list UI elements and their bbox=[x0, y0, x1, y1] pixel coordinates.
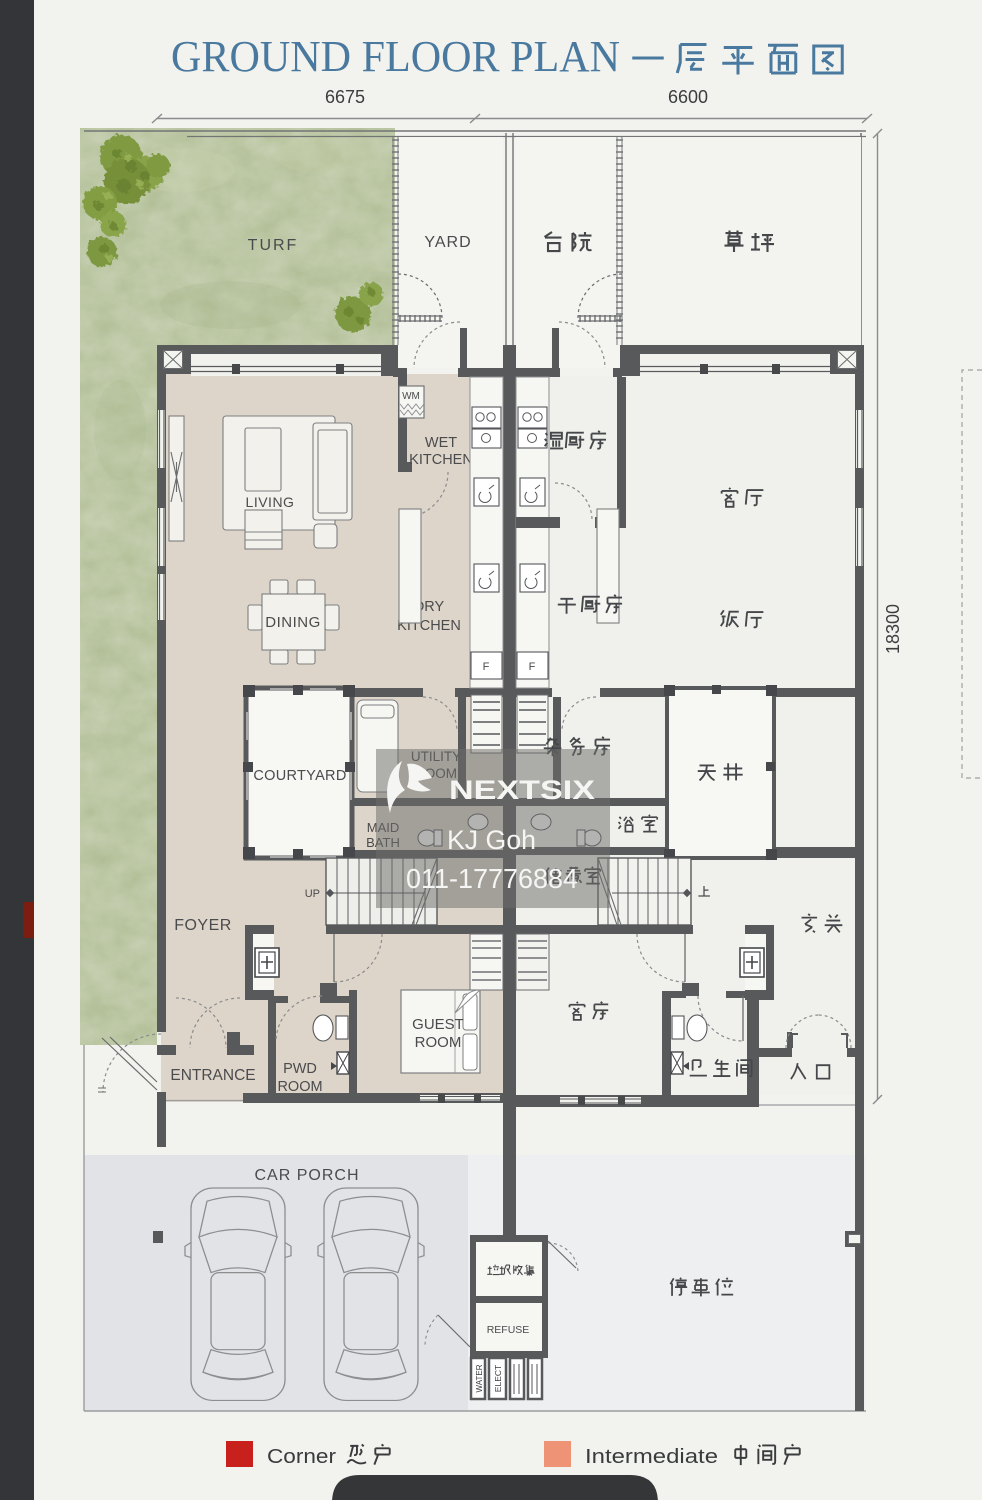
svg-text:DINING: DINING bbox=[265, 614, 321, 631]
svg-text:Corner: Corner bbox=[267, 1446, 336, 1468]
svg-text:ELECT: ELECT bbox=[493, 1365, 503, 1392]
svg-text:GROUND FLOOR PLAN: GROUND FLOOR PLAN bbox=[171, 32, 620, 81]
svg-text:TURF: TURF bbox=[248, 237, 299, 254]
svg-text:WM: WM bbox=[402, 391, 420, 402]
svg-text:6600: 6600 bbox=[668, 87, 708, 107]
svg-text:CAR PORCH: CAR PORCH bbox=[254, 1167, 359, 1184]
svg-text:Intermediate: Intermediate bbox=[585, 1446, 718, 1468]
svg-text:FOYER: FOYER bbox=[174, 917, 232, 934]
svg-text:NEXTSIX: NEXTSIX bbox=[449, 775, 595, 805]
svg-text:LIVING: LIVING bbox=[246, 494, 295, 510]
svg-text:KJ Goh: KJ Goh bbox=[447, 825, 536, 855]
svg-text:18300: 18300 bbox=[883, 604, 903, 654]
svg-text:ROOM: ROOM bbox=[415, 1034, 462, 1051]
svg-text:ENTRANCE: ENTRANCE bbox=[170, 1067, 255, 1084]
svg-text:PWD: PWD bbox=[283, 1061, 317, 1077]
svg-text:WATER: WATER bbox=[475, 1364, 484, 1392]
svg-text:F: F bbox=[529, 661, 536, 673]
svg-text:GUEST: GUEST bbox=[412, 1016, 464, 1033]
svg-text:UP: UP bbox=[305, 888, 320, 900]
svg-text:6675: 6675 bbox=[325, 87, 365, 107]
svg-text:KITCHEN: KITCHEN bbox=[409, 452, 473, 468]
svg-text:F: F bbox=[483, 661, 490, 673]
svg-text:WET: WET bbox=[425, 435, 457, 451]
svg-text:COURTYARD: COURTYARD bbox=[253, 768, 346, 784]
svg-text:REFUSE: REFUSE bbox=[487, 1324, 530, 1336]
svg-text:YARD: YARD bbox=[424, 234, 471, 251]
svg-text:ROOM: ROOM bbox=[277, 1079, 322, 1095]
svg-text:011-17776884: 011-17776884 bbox=[406, 863, 578, 894]
